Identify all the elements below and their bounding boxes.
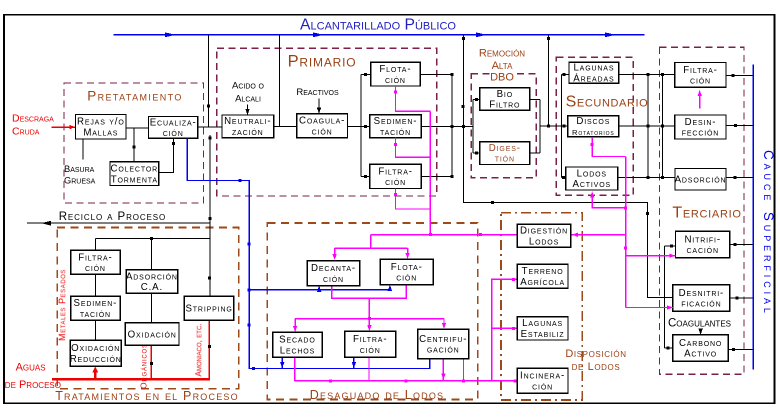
svg-text:Colector: Colector	[111, 164, 159, 175]
svg-text:Decanta-: Decanta-	[311, 263, 356, 274]
svg-text:Oxidación: Oxidación	[71, 343, 120, 354]
svg-text:Alcali: Alcali	[235, 93, 261, 104]
svg-text:Filtra-: Filtra-	[683, 65, 717, 76]
svg-text:ción: ción	[690, 76, 711, 87]
svg-text:Diges-: Diges-	[489, 143, 521, 154]
svg-text:Activo: Activo	[684, 349, 717, 360]
svg-text:Secundario: Secundario	[566, 93, 649, 110]
svg-text:Aguas: Aguas	[16, 361, 46, 373]
svg-text:Coagulantes: Coagulantes	[668, 317, 731, 329]
svg-text:DBO: DBO	[490, 72, 514, 84]
svg-text:Descraga: Descraga	[12, 113, 54, 125]
svg-text:Áreadas: Áreadas	[573, 73, 614, 84]
svg-text:Filtra-: Filtra-	[378, 166, 412, 177]
svg-text:Nitrifi-: Nitrifi-	[684, 234, 720, 245]
svg-text:Rotatorios: Rotatorios	[572, 128, 615, 137]
svg-text:de Lodos: de Lodos	[572, 361, 621, 373]
svg-text:Digestión: Digestión	[520, 226, 568, 237]
svg-text:Discos: Discos	[576, 116, 610, 127]
svg-text:Reactivos: Reactivos	[296, 87, 339, 98]
svg-text:Reciclo a Proceso: Reciclo a Proceso	[59, 211, 166, 223]
svg-text:zación: zación	[232, 127, 264, 138]
svg-text:Pretatamiento: Pretatamiento	[87, 88, 183, 103]
svg-text:ción: ción	[396, 273, 417, 284]
svg-text:Carbono: Carbono	[679, 338, 722, 349]
svg-text:Activos: Activos	[573, 179, 611, 190]
svg-text:Filtra-: Filtra-	[353, 334, 387, 345]
svg-text:Reducción: Reducción	[70, 354, 122, 365]
svg-text:Neutrali-: Neutrali-	[224, 116, 271, 127]
svg-text:Primario: Primario	[288, 53, 357, 71]
svg-text:Agrícola: Agrícola	[520, 277, 565, 288]
svg-text:Estabiliz: Estabiliz	[521, 329, 565, 340]
svg-text:ción: ción	[312, 126, 333, 137]
svg-text:Incinera-: Incinera-	[520, 371, 565, 382]
svg-text:Flota-: Flota-	[379, 64, 411, 75]
svg-text:Lodos: Lodos	[529, 237, 559, 248]
svg-text:ficación: ficación	[681, 299, 721, 310]
svg-text:Bio: Bio	[497, 89, 513, 100]
svg-text:Desin-: Desin-	[685, 117, 717, 128]
svg-text:Rejas y/o: Rejas y/o	[77, 117, 125, 128]
svg-text:Desnitri-: Desnitri-	[679, 288, 725, 299]
svg-text:Tormenta: Tormenta	[111, 174, 158, 185]
svg-text:Adsorción: Adsorción	[675, 175, 727, 186]
svg-text:ción: ción	[385, 75, 406, 86]
svg-text:tación: tación	[80, 309, 111, 320]
svg-text:Terciario: Terciario	[672, 204, 741, 221]
svg-text:Secado: Secado	[279, 335, 315, 346]
svg-text:Desaguado de Lodos: Desaguado de Lodos	[310, 388, 445, 402]
svg-text:tación: tación	[380, 127, 411, 138]
svg-text:C.A.: C.A.	[141, 282, 163, 293]
svg-text:cación: cación	[687, 245, 719, 256]
svg-text:Lagunas: Lagunas	[522, 318, 563, 329]
svg-text:ción: ción	[385, 177, 406, 188]
svg-text:ción: ción	[360, 345, 381, 356]
svg-text:Tratamientos en el Proceso: Tratamientos en el Proceso	[55, 389, 239, 403]
svg-text:Cruda: Cruda	[12, 126, 40, 138]
svg-text:Amoniaco, etc.: Amoniaco, etc.	[193, 323, 203, 376]
svg-text:Ecualiza-: Ecualiza-	[150, 117, 197, 128]
svg-text:Lodos: Lodos	[577, 168, 607, 179]
svg-text:Filtro: Filtro	[489, 100, 520, 111]
svg-text:gación: gación	[427, 345, 460, 356]
svg-text:Lagunas: Lagunas	[573, 63, 614, 74]
svg-text:Gruesa: Gruesa	[64, 176, 96, 186]
svg-text:Oxidación: Oxidación	[128, 329, 177, 340]
svg-text:Flota-: Flota-	[391, 262, 423, 273]
svg-text:Alcantarillado Público: Alcantarillado Público	[300, 16, 456, 33]
svg-text:Cauce Superficial: Cauce Superficial	[761, 150, 776, 317]
svg-text:Metales Pesados: Metales Pesados	[57, 269, 67, 341]
svg-text:Acido o: Acido o	[232, 80, 264, 91]
svg-text:tión: tión	[495, 154, 515, 165]
svg-text:Coagula-: Coagula-	[299, 116, 345, 127]
svg-text:Orgánicos: Orgánicos	[139, 343, 149, 389]
svg-text:fección: fección	[682, 128, 719, 139]
svg-text:ción: ción	[323, 274, 344, 285]
svg-text:Centrifu-: Centrifu-	[419, 334, 467, 345]
svg-text:ción: ción	[163, 128, 184, 139]
svg-text:Lechos: Lechos	[280, 346, 315, 357]
svg-text:Adsorción: Adsorción	[126, 271, 178, 282]
svg-text:Alta: Alta	[492, 60, 513, 72]
svg-text:Disposición: Disposición	[565, 348, 626, 360]
svg-text:de Proceso: de Proceso	[5, 379, 61, 391]
svg-text:Filtra-: Filtra-	[78, 252, 112, 263]
svg-text:Basura: Basura	[64, 164, 95, 174]
svg-text:Mallas: Mallas	[83, 127, 118, 138]
svg-text:Terreno: Terreno	[522, 266, 564, 277]
svg-text:Sedimen-: Sedimen-	[374, 116, 418, 127]
svg-text:Sedimen-: Sedimen-	[74, 298, 118, 309]
svg-text:Remoción: Remoción	[479, 48, 525, 60]
svg-text:Stripping: Stripping	[186, 303, 233, 314]
svg-text:ción: ción	[532, 382, 553, 393]
svg-text:ción: ción	[85, 263, 106, 274]
